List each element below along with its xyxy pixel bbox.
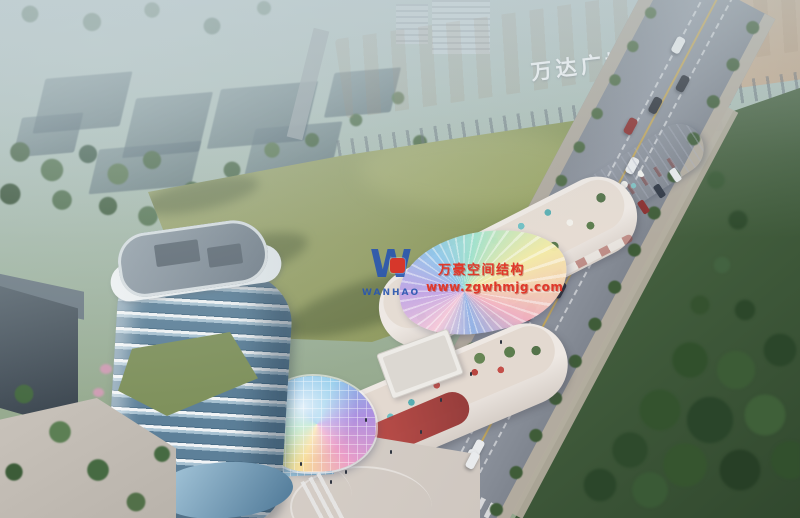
watermark-website: www.zgwhmjg.com <box>426 280 563 294</box>
pedestrian <box>420 430 422 434</box>
pedestrian <box>390 450 392 454</box>
rooftop-equipment <box>207 243 243 268</box>
plaza-trees <box>0 360 220 518</box>
pedestrian <box>470 372 472 376</box>
car <box>670 36 686 55</box>
rooftop-equipment <box>154 239 201 267</box>
pedestrian <box>500 340 502 344</box>
pedestrian <box>345 470 347 474</box>
aerial-rendering: 万达广场 <box>0 0 800 518</box>
pedestrian <box>300 462 302 466</box>
watermark: W WANHAO 万豪空间结构 www.zgwhmjg.com <box>358 250 533 306</box>
wanhao-logo-badge <box>390 258 405 273</box>
car <box>675 74 691 93</box>
wanhao-logo-text: WANHAO <box>362 288 420 298</box>
pedestrian <box>330 480 332 484</box>
pedestrian <box>365 418 367 422</box>
watermark-company: 万豪空间结构 <box>438 259 525 278</box>
pedestrian <box>440 398 442 402</box>
